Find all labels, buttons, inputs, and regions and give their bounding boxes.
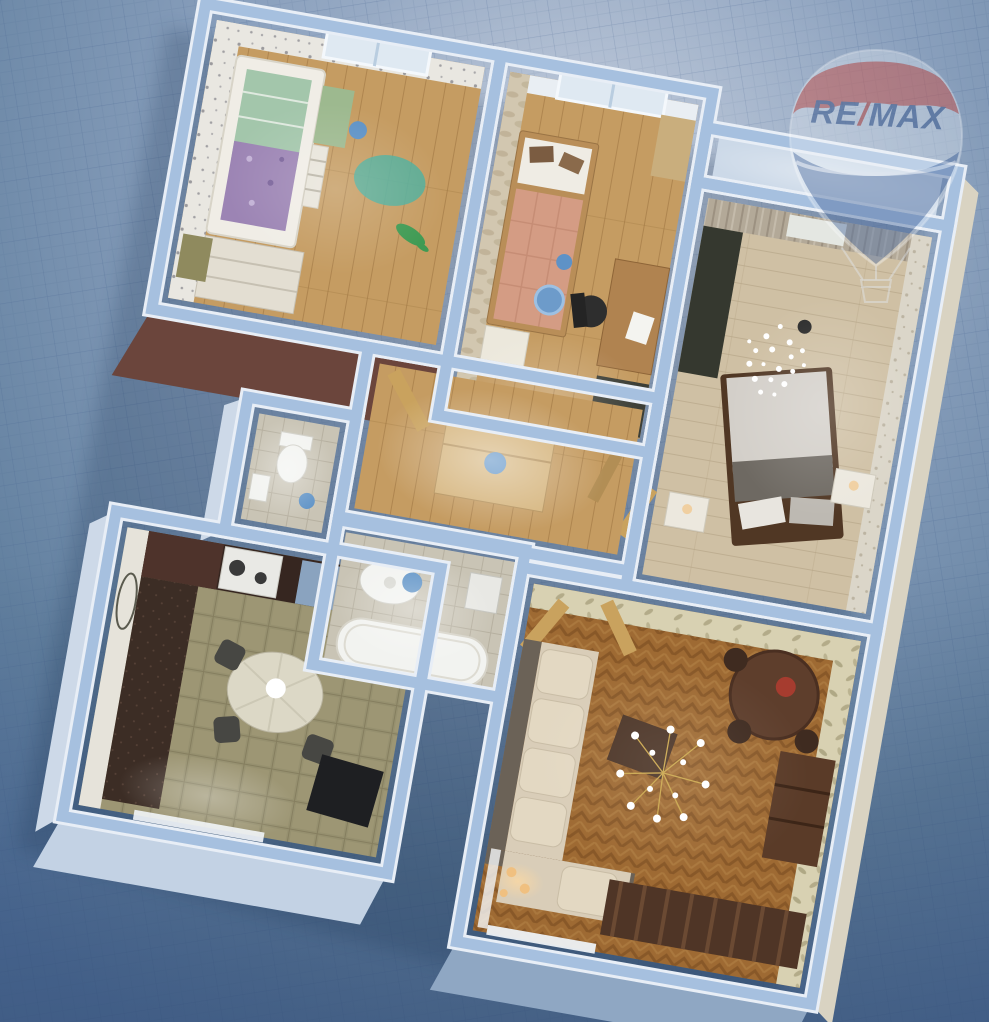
- remax-logo-text: RE/MAX: [810, 93, 947, 137]
- kitchen-chair-2: [213, 716, 241, 744]
- room-nursery: [168, 10, 487, 345]
- master-nightstand-left: [664, 492, 709, 532]
- floor-plan-render: RE/MAX: [0, 0, 989, 1022]
- room-living: [469, 583, 860, 990]
